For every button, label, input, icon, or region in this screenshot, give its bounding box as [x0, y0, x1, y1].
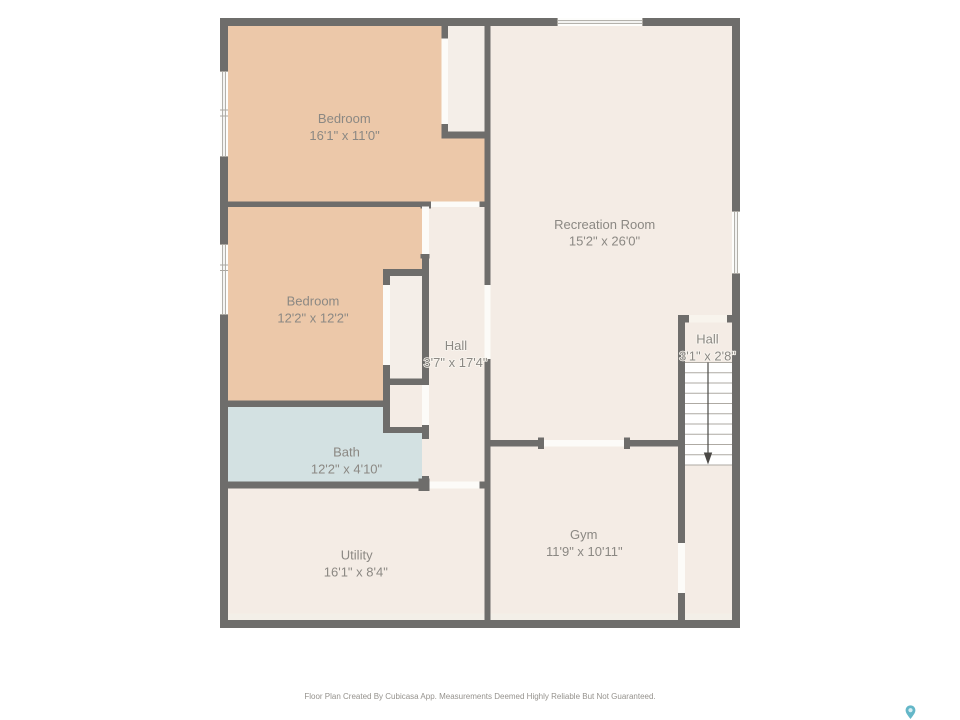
- svg-text:Floor Plan Created By Cubicasa: Floor Plan Created By Cubicasa App. Meas…: [304, 692, 655, 701]
- svg-text:Utility: Utility: [341, 548, 373, 563]
- svg-text:12'2" x 4'10": 12'2" x 4'10": [311, 462, 383, 477]
- svg-text:12'2" x 12'2": 12'2" x 12'2": [277, 311, 349, 326]
- svg-text:Hall: Hall: [445, 338, 468, 353]
- svg-text:3'1" x 2'8": 3'1" x 2'8": [679, 348, 736, 363]
- svg-text:3'7" x 17'4": 3'7" x 17'4": [423, 355, 487, 370]
- svg-text:Bedroom: Bedroom: [287, 293, 340, 308]
- svg-text:Bath: Bath: [333, 445, 360, 460]
- svg-text:15'2" x 26'0": 15'2" x 26'0": [569, 234, 641, 249]
- svg-text:11'9" x 10'11": 11'9" x 10'11": [546, 544, 623, 559]
- svg-text:16'1" x 11'0": 16'1" x 11'0": [309, 128, 380, 143]
- svg-text:16'1" x 8'4": 16'1" x 8'4": [324, 565, 388, 580]
- svg-text:Gym: Gym: [570, 527, 597, 542]
- svg-text:Bedroom: Bedroom: [318, 111, 371, 126]
- svg-text:Recreation Room: Recreation Room: [554, 217, 655, 232]
- svg-text:Hall: Hall: [696, 332, 719, 347]
